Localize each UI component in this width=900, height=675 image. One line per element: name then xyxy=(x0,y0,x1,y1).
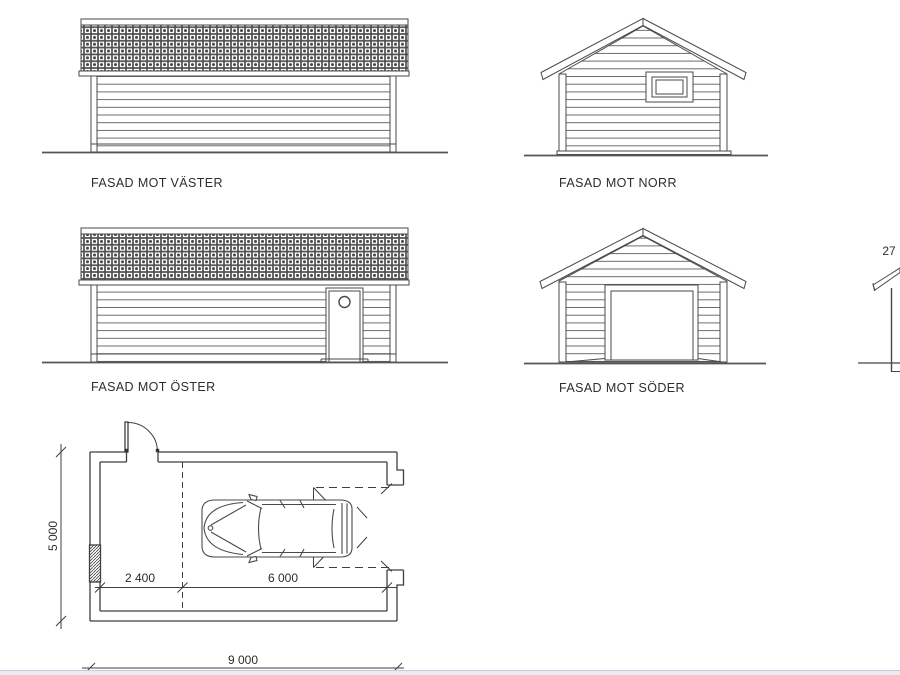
floor-plan-drawing xyxy=(56,422,404,673)
facade-west-label: FASAD MOT VÄSTER xyxy=(91,176,223,190)
facade-south-label: FASAD MOT SÖDER xyxy=(559,381,685,395)
plan-dim-total-width: 9 000 xyxy=(213,653,273,667)
facade-north-label: FASAD MOT NORR xyxy=(559,176,677,190)
drawing-sheet: FASAD MOT VÄSTER FASAD MOT NORR FASAD MO… xyxy=(0,0,900,675)
gable-wall-siding xyxy=(559,26,727,151)
corner-post-right xyxy=(390,285,396,362)
roof-ridge xyxy=(81,228,408,234)
corner-post-left xyxy=(91,76,97,152)
plan-dim-garage-width: 6 000 xyxy=(253,571,313,585)
section-dimension-text: 27 xyxy=(878,244,900,258)
facade-east-drawing xyxy=(42,228,448,363)
plan-dimension-lines xyxy=(56,444,404,673)
roof-ridge xyxy=(81,19,408,25)
roof-fascia xyxy=(79,71,409,76)
corner-post-right xyxy=(720,282,727,362)
section-partial-drawing xyxy=(858,268,900,372)
roof-fascia xyxy=(79,280,409,285)
wall-siding xyxy=(97,76,390,152)
garage-door-opening xyxy=(605,285,698,360)
plan-entry-door xyxy=(125,422,160,452)
facade-south-drawing xyxy=(524,229,766,364)
corner-post-left xyxy=(91,285,97,362)
facade-north-drawing xyxy=(524,19,768,156)
corner-post-right xyxy=(390,76,396,152)
base-plate xyxy=(557,151,731,155)
plan-dim-depth: 5 000 xyxy=(46,516,60,556)
corner-post-left xyxy=(559,282,566,362)
entry-door xyxy=(321,288,368,362)
car-body xyxy=(202,500,352,557)
corner-post-left xyxy=(559,74,566,151)
facade-east-label: FASAD MOT ÖSTER xyxy=(91,380,216,394)
page-bottom-edge xyxy=(0,670,900,675)
corner-post-right xyxy=(720,74,727,151)
plan-dim-entry-width: 2 400 xyxy=(110,571,170,585)
roof-edge xyxy=(873,268,900,290)
gable-window xyxy=(646,72,693,102)
facade-west-drawing xyxy=(42,19,448,153)
plan-car xyxy=(202,495,352,563)
roof-tiles xyxy=(81,25,408,71)
plan-window xyxy=(90,545,101,582)
roof-tiles xyxy=(81,234,408,280)
